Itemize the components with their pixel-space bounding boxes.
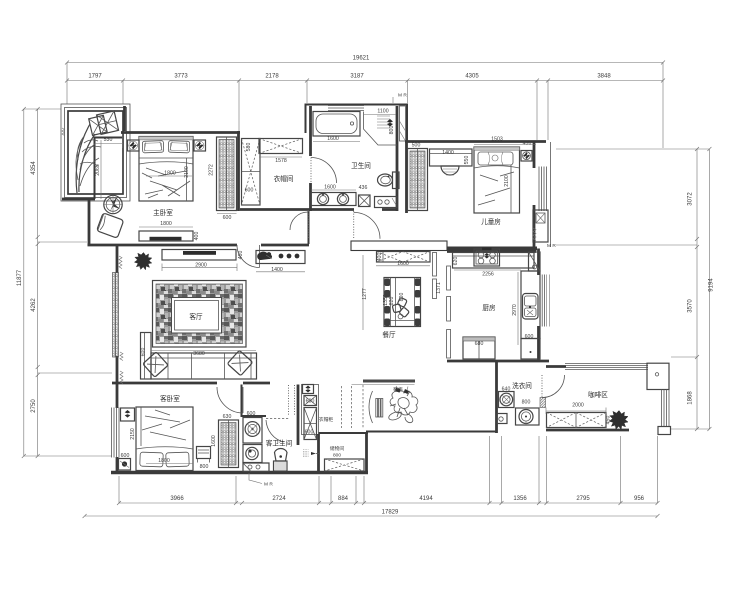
svg-text:630: 630	[223, 414, 232, 420]
svg-text:580: 580	[246, 143, 252, 152]
svg-text:3848: 3848	[597, 74, 611, 80]
svg-text:1400: 1400	[442, 150, 454, 156]
svg-text:1868: 1868	[688, 391, 694, 405]
svg-text:680: 680	[475, 341, 484, 347]
svg-text:550: 550	[464, 156, 470, 165]
svg-text:1800: 1800	[164, 171, 176, 177]
svg-text:436: 436	[359, 185, 368, 191]
svg-text:衣帽柜: 衣帽柜	[319, 416, 334, 423]
svg-text:600: 600	[306, 399, 315, 405]
svg-text:600: 600	[141, 348, 147, 357]
svg-text:1800: 1800	[160, 221, 172, 227]
svg-text:衣帽间: 衣帽间	[274, 174, 294, 183]
svg-text:2724: 2724	[272, 496, 286, 502]
svg-text:4305: 4305	[465, 74, 479, 80]
svg-text:600: 600	[245, 188, 254, 194]
svg-text:1797: 1797	[88, 74, 102, 80]
svg-text:4354: 4354	[31, 161, 37, 175]
svg-text:1600: 1600	[324, 185, 336, 191]
svg-text:厨房: 厨房	[482, 303, 496, 312]
svg-text:1350: 1350	[383, 294, 389, 306]
svg-text:1503: 1503	[491, 137, 503, 143]
svg-text:咖啡区: 咖啡区	[588, 390, 608, 399]
svg-text:2065: 2065	[95, 164, 101, 176]
svg-text:17829: 17829	[382, 510, 399, 516]
svg-text:3773: 3773	[174, 74, 188, 80]
svg-text:600: 600	[525, 334, 534, 340]
svg-text:400: 400	[194, 232, 200, 241]
svg-text:1356: 1356	[513, 496, 527, 502]
svg-text:儿童房: 儿童房	[481, 217, 501, 226]
svg-text:800: 800	[399, 293, 405, 302]
svg-text:2750: 2750	[31, 399, 37, 413]
svg-text:3072: 3072	[688, 192, 694, 206]
svg-text:800: 800	[522, 400, 531, 406]
svg-text:客卫生间: 客卫生间	[266, 439, 293, 448]
svg-text:600: 600	[305, 430, 314, 436]
svg-text:450: 450	[523, 141, 532, 147]
svg-text:M R: M R	[264, 482, 273, 488]
svg-text:4194: 4194	[419, 496, 433, 502]
svg-text:2970: 2970	[512, 304, 518, 316]
svg-text:M R: M R	[547, 243, 556, 249]
svg-text:主卧室: 主卧室	[153, 208, 173, 217]
svg-text:1600: 1600	[211, 435, 217, 447]
svg-text:19621: 19621	[353, 56, 370, 62]
svg-text:600: 600	[247, 411, 256, 417]
svg-text:客卧室: 客卧室	[160, 394, 180, 403]
svg-text:储物间: 储物间	[330, 445, 345, 452]
svg-text:2256: 2256	[482, 272, 494, 278]
svg-text:2178: 2178	[265, 74, 279, 80]
svg-text:卫生间: 卫生间	[351, 161, 371, 170]
svg-text:500: 500	[412, 143, 421, 149]
svg-text:3966: 3966	[170, 496, 184, 502]
svg-text:2795: 2795	[576, 496, 590, 502]
svg-text:M R: M R	[398, 93, 407, 99]
svg-text:820: 820	[389, 297, 395, 306]
svg-text:鞋柜: 鞋柜	[393, 386, 403, 393]
svg-text:1100: 1100	[377, 109, 388, 115]
svg-text:400: 400	[238, 251, 244, 260]
svg-text:956: 956	[634, 496, 645, 502]
svg-text:640: 640	[502, 387, 511, 393]
svg-text:1800: 1800	[158, 458, 170, 464]
svg-text:2900: 2900	[195, 262, 207, 268]
svg-text:800: 800	[200, 464, 209, 470]
svg-text:3570: 3570	[688, 299, 694, 313]
svg-text:600: 600	[121, 453, 130, 459]
svg-text:洗衣间: 洗衣间	[512, 381, 532, 390]
svg-text:600: 600	[223, 215, 232, 221]
svg-text:2272: 2272	[209, 164, 215, 176]
svg-text:1371: 1371	[436, 282, 442, 294]
svg-text:450: 450	[606, 416, 612, 425]
svg-text:2100: 2100	[504, 175, 510, 187]
svg-text:1600: 1600	[397, 261, 409, 267]
svg-text:620: 620	[453, 257, 459, 266]
svg-text:1578: 1578	[275, 158, 287, 164]
svg-text:4262: 4262	[31, 298, 37, 312]
svg-text:11877: 11877	[17, 269, 23, 286]
svg-text:1400: 1400	[271, 267, 283, 273]
svg-text:800: 800	[389, 126, 395, 135]
svg-text:2100: 2100	[184, 166, 190, 178]
svg-text:2150: 2150	[130, 428, 136, 440]
svg-text:餐厅: 餐厅	[382, 330, 396, 339]
svg-text:1600: 1600	[327, 136, 339, 142]
svg-text:3680: 3680	[193, 351, 205, 357]
svg-text:884: 884	[338, 496, 349, 502]
svg-text:530: 530	[104, 137, 113, 143]
svg-text:9194: 9194	[709, 278, 715, 292]
svg-text:800: 800	[333, 453, 341, 459]
svg-text:2000: 2000	[572, 403, 584, 409]
svg-text:400: 400	[377, 253, 383, 262]
svg-text:3187: 3187	[350, 74, 364, 80]
svg-text:客厅: 客厅	[189, 312, 203, 321]
